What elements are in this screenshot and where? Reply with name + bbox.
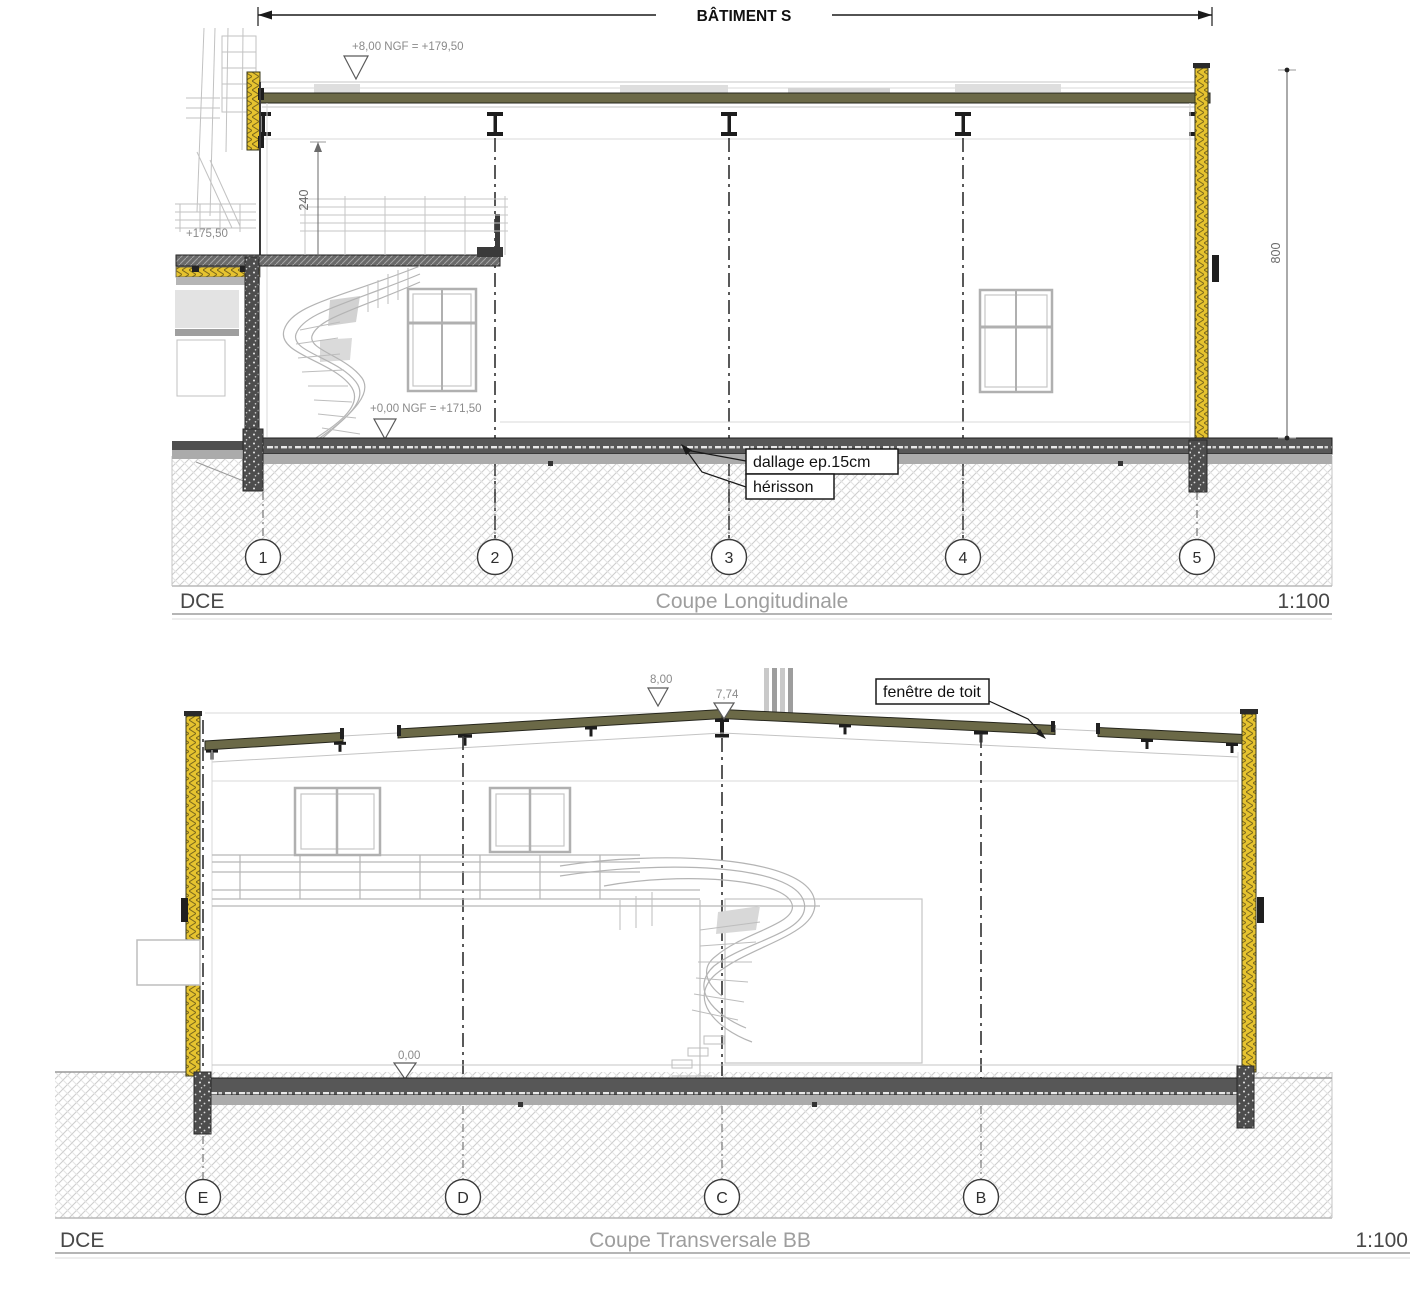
level-mezzanine-label: +175,50 <box>186 228 228 240</box>
skylight-curb-left <box>397 725 401 736</box>
skylight-curb-left <box>340 728 344 739</box>
grid-bubble-1-label: 1 <box>259 550 268 567</box>
building-dimension: BÂTIMENT S <box>258 7 1212 26</box>
column-caps <box>255 112 1205 136</box>
titlebar-bottom-scale: 1:100 <box>1355 1229 1408 1252</box>
grid-bubble-D-label: D <box>457 1190 469 1207</box>
foundation-grid5 <box>1189 440 1207 492</box>
grid-bubble-E-label: E <box>198 1190 209 1207</box>
window-top-b <box>980 290 1052 392</box>
roof-skylight-curb <box>314 84 360 93</box>
grid-bubble-B-label: B <box>976 1190 987 1207</box>
insulated-wall-right <box>1195 68 1208 440</box>
titlebar-bottom-phase: DCE <box>60 1229 104 1252</box>
level-ridge-a-label: 8,00 <box>650 674 672 686</box>
grid-bubble-4-label: 4 <box>959 550 968 567</box>
skylight-curb-right <box>1051 721 1055 732</box>
skylight-curb-right <box>1096 723 1100 734</box>
level-roof-label: +8,00 NGF = +179,50 <box>352 41 464 53</box>
grid-bubble-C-label: C <box>716 1190 728 1207</box>
roof-band <box>260 93 1210 103</box>
dim-800-label: 800 <box>1269 243 1283 264</box>
dim-800: 800 <box>1269 68 1296 441</box>
building-dimension-label: BÂTIMENT S <box>697 7 792 25</box>
exterior-box <box>137 940 200 985</box>
window-top-a <box>408 289 476 391</box>
left-wall-cap <box>184 711 202 716</box>
herisson-label: hérisson <box>753 479 813 496</box>
top-section-drawing: BÂTIMENT S <box>172 7 1332 619</box>
level-roof-marker: +8,00 NGF = +179,50 <box>344 41 464 79</box>
titlebar-bottom: DCE Coupe Transversale BB 1:100 <box>55 1229 1410 1258</box>
grid-bubble-5-label: 5 <box>1193 550 1202 567</box>
slab-underlay-bottom-section <box>200 1095 1248 1105</box>
mezzanine-railing-top-section <box>300 196 508 255</box>
right-wall-cap <box>1240 709 1258 714</box>
mezzanine-floor <box>176 255 500 266</box>
existing-floor-block <box>175 290 239 328</box>
foundation-grid1 <box>243 429 263 491</box>
titlebar-top: DCE Coupe Longitudinale 1:100 <box>172 590 1332 619</box>
foundation-gridB-wall <box>1237 1066 1254 1128</box>
existing-building-left <box>175 28 256 232</box>
right-wall-handle <box>1212 255 1219 282</box>
titlebar-top-phase: DCE <box>180 590 224 613</box>
titlebar-bottom-name: Coupe Transversale BB <box>589 1229 811 1252</box>
existing-slab <box>172 441 248 450</box>
existing-opening <box>177 340 225 396</box>
window-bottom-b <box>490 788 570 852</box>
drawing-sheet: BÂTIMENT S <box>0 0 1424 1300</box>
left-wall-handle <box>181 898 188 922</box>
floor-slab-bottom-section <box>200 1078 1248 1095</box>
window-bottom-a <box>295 788 380 855</box>
dim-240-label: 240 <box>297 190 311 211</box>
level-ground-label-top: +0,00 NGF = +171,50 <box>370 403 482 415</box>
insulated-wall-left-bottom <box>186 716 200 1076</box>
roof-skylight-curb <box>620 85 728 93</box>
level-ground-marker-top: +0,00 NGF = +171,50 <box>370 403 482 439</box>
mezzanine-edge-beam <box>477 247 503 257</box>
insulated-wall-right-bottom <box>1242 714 1256 1072</box>
roof-top-section <box>256 82 1210 139</box>
roof-skylight-curb <box>955 84 1061 92</box>
dallage-label: dallage ep.15cm <box>753 454 870 471</box>
right-wall-cap <box>1193 63 1210 68</box>
right-wall-handle <box>1257 897 1264 923</box>
roof-vent <box>764 668 793 716</box>
foundation-gridE <box>194 1072 211 1134</box>
titlebar-top-scale: 1:100 <box>1277 590 1330 613</box>
titlebar-top-name: Coupe Longitudinale <box>656 590 849 613</box>
spiral-stair-top-section <box>283 266 420 450</box>
grid-bubble-2-label: 2 <box>491 550 500 567</box>
existing-floor-edge <box>175 329 239 336</box>
level-ground-label-bottom: 0,00 <box>398 1050 420 1062</box>
roof-window-label: fenêtre de toit <box>883 684 981 701</box>
level-ridge-b-label: 7,74 <box>716 689 739 701</box>
sections-svg: BÂTIMENT S <box>0 0 1424 1300</box>
grid1-wall <box>245 257 259 429</box>
grid-bubble-3-label: 3 <box>725 550 734 567</box>
bottom-section-drawing: 8,00 7,74 fenêtre de toit <box>55 668 1410 1258</box>
